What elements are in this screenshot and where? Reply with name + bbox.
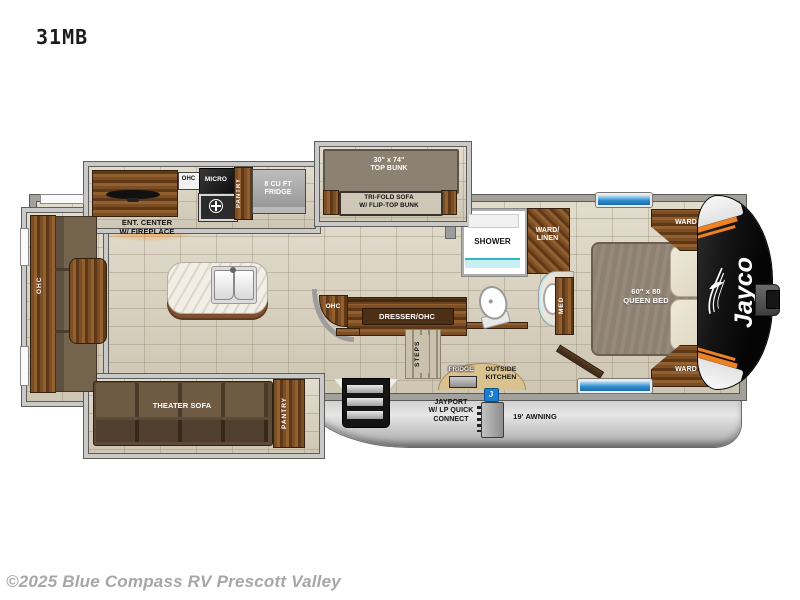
jayco-logo-text: Jayco (732, 257, 757, 328)
ent-center-label: ENT. CENTER W/ FIREPLACE (88, 218, 206, 236)
shower-label: SHOWER (463, 237, 522, 247)
pantry-2-label: PANTRY (281, 388, 295, 438)
trifold-sofa-label: TRI-FOLD SOFA W/ FLIP-TOP BUNK (339, 194, 439, 209)
wood-shelf (336, 328, 360, 336)
ohc-left-label: OHC (36, 262, 49, 308)
top-bunk-label: 30" x 74" TOP BUNK (323, 157, 455, 174)
window (20, 346, 29, 386)
tv-stand (127, 198, 139, 202)
outside-fridge-label: FRIDGE (442, 366, 480, 374)
lp-connect-box (481, 402, 504, 438)
faucet-icon (230, 267, 236, 273)
shower-threshold (465, 258, 520, 268)
ohc-box-label: OHC (178, 176, 199, 183)
jayport-badge-letter: J (484, 390, 498, 400)
stove-burner-icon (209, 199, 223, 213)
microwave-label: MICRO (199, 176, 233, 184)
outside-kitchen-label: OUTSIDE KITCHEN (477, 366, 525, 382)
step-tread (347, 411, 383, 419)
queen-bed-label: 60" x 80 QUEEN BED (598, 287, 694, 305)
bedroom-window-bottom (578, 379, 652, 393)
ohc-curve-label: OHC (320, 303, 346, 311)
bedroom-window-top (596, 193, 652, 207)
floorplan-model-title: 31MB (36, 26, 156, 48)
step-tread (347, 398, 383, 406)
med-label: MED (558, 288, 570, 322)
hitch-pin-knob (766, 290, 780, 309)
theater-sofa-seats (96, 383, 268, 417)
wardrobe-bottom-label: WARD (658, 366, 714, 374)
rv-floorplan-page: 31MB OHC OHC MICRO PANTRY 8 CU FT FRIDGE… (0, 0, 800, 600)
dealer-copyright: ©2025 Blue Compass RV Prescott Valley (6, 572, 426, 592)
front-window (40, 194, 84, 204)
pantry-label: PANTRY (236, 172, 249, 214)
dinette-table (69, 258, 107, 344)
sink-basin (214, 270, 234, 300)
theater-sofa-label: THEATER SOFA (122, 401, 242, 410)
bunk-end-table (323, 190, 339, 215)
step-tread (347, 385, 383, 393)
wardrobe-top-label: WARD (658, 219, 714, 227)
jayport-label: JAYPORT W/ LP QUICK CONNECT (421, 399, 481, 424)
outside-fridge-tray (449, 376, 477, 388)
ward-linen-label: WARD/ LINEN (527, 227, 568, 244)
theater-sofa-back (96, 420, 268, 442)
shower-shelf (468, 214, 519, 228)
steps-label: STEPS (414, 335, 429, 373)
sink-basin (234, 270, 254, 300)
awning-length-label: 19' AWNING (504, 412, 566, 421)
bunk-end-table (441, 190, 457, 215)
window (20, 228, 29, 266)
refrigerator-label: 8 CU FT FRIDGE (252, 181, 304, 198)
dresser-label: DRESSER/OHC (362, 312, 452, 321)
